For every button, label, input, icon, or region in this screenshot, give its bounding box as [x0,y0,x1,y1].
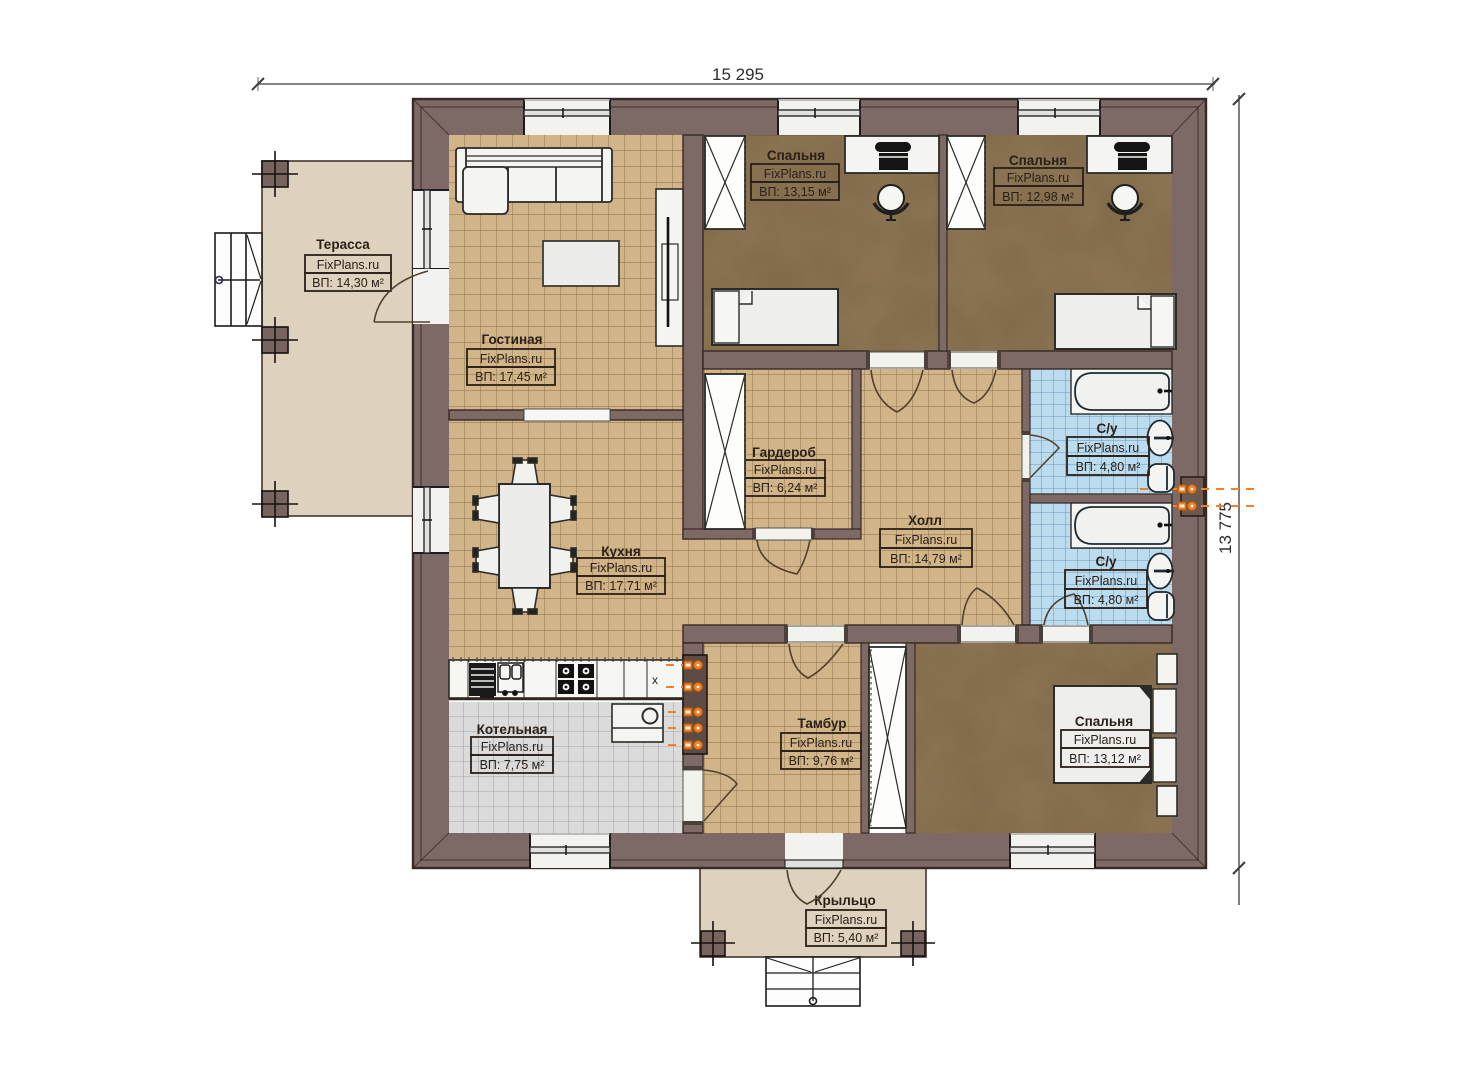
svg-text:Котельная: Котельная [477,722,548,737]
svg-text:Гостиная: Гостиная [481,332,542,347]
svg-text:ВП: 14,30 м²: ВП: 14,30 м² [312,276,384,290]
svg-text:С/у: С/у [1095,554,1117,569]
svg-text:Спальня: Спальня [767,148,825,163]
svg-text:ВП: 4,80 м²: ВП: 4,80 м² [1076,460,1141,474]
svg-text:ВП: 4,80 м²: ВП: 4,80 м² [1074,593,1139,607]
svg-text:Кухня: Кухня [601,544,640,559]
svg-text:ВП: 7,75 м²: ВП: 7,75 м² [480,758,545,772]
svg-text:FixPlans.ru: FixPlans.ru [317,258,380,272]
svg-text:ВП: 9,76 м²: ВП: 9,76 м² [789,754,854,768]
svg-text:Холл: Холл [908,513,942,528]
svg-text:FixPlans.ru: FixPlans.ru [790,736,853,750]
svg-text:FixPlans.ru: FixPlans.ru [895,533,958,547]
svg-text:ВП: 17,45 м²: ВП: 17,45 м² [475,370,547,384]
svg-text:x: x [652,673,658,687]
svg-text:FixPlans.ru: FixPlans.ru [1077,441,1140,455]
svg-text:ВП: 13,15 м²: ВП: 13,15 м² [759,185,831,199]
svg-text:ВП: 5,40 м²: ВП: 5,40 м² [814,931,879,945]
svg-text:Спальня: Спальня [1075,714,1133,729]
svg-text:FixPlans.ru: FixPlans.ru [1074,733,1137,747]
svg-text:ВП: 13,12 м²: ВП: 13,12 м² [1069,752,1141,766]
svg-text:FixPlans.ru: FixPlans.ru [590,561,653,575]
svg-text:FixPlans.ru: FixPlans.ru [1075,574,1138,588]
svg-text:С/у: С/у [1096,421,1118,436]
svg-text:Спальня: Спальня [1009,153,1067,168]
svg-text:FixPlans.ru: FixPlans.ru [1007,171,1070,185]
svg-text:FixPlans.ru: FixPlans.ru [764,167,827,181]
svg-text:Гардероб: Гардероб [752,445,816,460]
svg-text:ВП: 17,71 м²: ВП: 17,71 м² [585,579,657,593]
svg-text:Тамбур: Тамбур [798,716,847,731]
svg-text:FixPlans.ru: FixPlans.ru [754,463,817,477]
svg-text:FixPlans.ru: FixPlans.ru [815,913,878,927]
svg-text:Крыльцо: Крыльцо [814,893,875,908]
svg-text:15 295: 15 295 [712,65,764,84]
svg-text:13 775: 13 775 [1216,502,1235,554]
svg-text:ВП: 12,98 м²: ВП: 12,98 м² [1002,190,1074,204]
svg-text:FixPlans.ru: FixPlans.ru [480,352,543,366]
svg-text:FixPlans.ru: FixPlans.ru [481,740,544,754]
svg-text:ВП: 6,24 м²: ВП: 6,24 м² [753,481,818,495]
svg-text:ВП: 14,79 м²: ВП: 14,79 м² [890,552,962,566]
svg-text:Терасса: Терасса [316,237,370,252]
